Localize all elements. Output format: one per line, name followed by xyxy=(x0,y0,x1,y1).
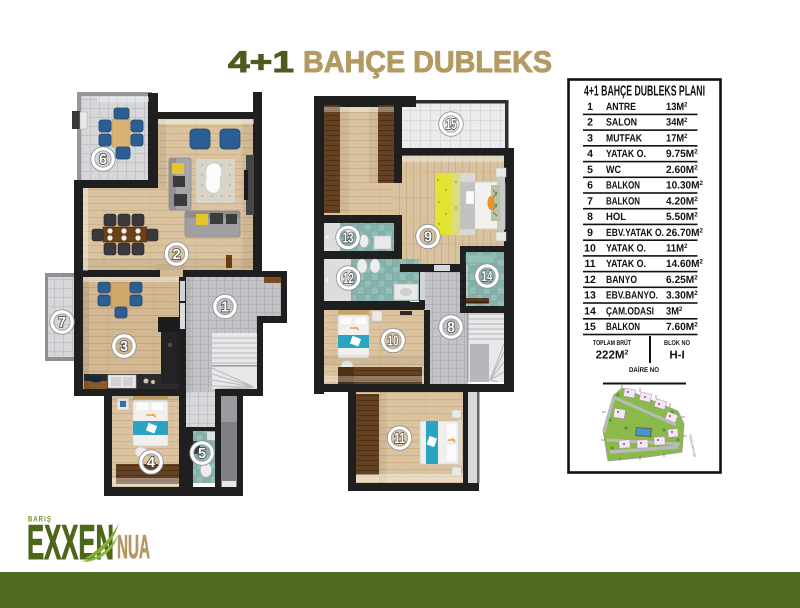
svg-text:EBV.YATAK O.: EBV.YATAK O. xyxy=(606,227,664,239)
svg-text:1: 1 xyxy=(221,299,229,315)
svg-text:WC: WC xyxy=(606,164,621,176)
svg-text:6: 6 xyxy=(99,152,107,168)
svg-text:YATAK O.: YATAK O. xyxy=(606,243,646,255)
svg-text:ANTRE: ANTRE xyxy=(606,101,636,113)
svg-text:TOPLAM BRÜT: TOPLAM BRÜT xyxy=(593,339,632,347)
svg-text:12: 12 xyxy=(584,274,596,286)
svg-text:2: 2 xyxy=(172,247,180,263)
svg-text:13: 13 xyxy=(343,230,354,246)
svg-text:222M2: 222M2 xyxy=(596,350,629,362)
svg-text:3: 3 xyxy=(587,132,593,144)
svg-text:9: 9 xyxy=(587,227,593,239)
svg-text:YATAK O.: YATAK O. xyxy=(606,258,646,270)
svg-text:NUA: NUA xyxy=(117,528,150,565)
svg-text:8: 8 xyxy=(447,320,455,336)
svg-text:10: 10 xyxy=(388,333,399,349)
svg-text:BALKON: BALKON xyxy=(606,195,640,207)
svg-text:EXXEN: EXXEN xyxy=(27,516,114,570)
svg-text:12: 12 xyxy=(343,271,354,287)
svg-text:4+1 BAHÇE DUBLEKS PLANI: 4+1 BAHÇE DUBLEKS PLANI xyxy=(584,84,705,100)
svg-text:7: 7 xyxy=(587,195,593,207)
svg-text:5: 5 xyxy=(198,446,206,462)
svg-text:BALKON: BALKON xyxy=(606,180,640,192)
svg-text:9.75M2: 9.75M2 xyxy=(666,148,698,160)
svg-text:5.50M2: 5.50M2 xyxy=(666,211,698,223)
svg-text:4+1: 4+1 xyxy=(228,46,294,79)
svg-text:BLOK NO: BLOK NO xyxy=(664,340,690,347)
svg-text:9: 9 xyxy=(424,229,432,245)
svg-text:15: 15 xyxy=(584,321,596,333)
svg-text:2.60M2: 2.60M2 xyxy=(666,164,698,176)
svg-text:11: 11 xyxy=(394,431,405,447)
svg-text:SALON: SALON xyxy=(606,117,637,129)
svg-text:4.20M2: 4.20M2 xyxy=(666,195,698,207)
svg-text:3.30M2: 3.30M2 xyxy=(666,290,698,302)
svg-text:14: 14 xyxy=(584,305,596,317)
svg-text:7: 7 xyxy=(58,315,66,331)
svg-text:5: 5 xyxy=(587,164,593,176)
svg-text:4: 4 xyxy=(147,455,155,471)
svg-text:1: 1 xyxy=(587,101,593,113)
svg-text:7.60M2: 7.60M2 xyxy=(666,321,698,333)
svg-text:8: 8 xyxy=(587,211,593,223)
svg-text:10.30M2: 10.30M2 xyxy=(666,180,703,192)
svg-text:15: 15 xyxy=(446,117,457,133)
svg-text:ÇAM.ODASI: ÇAM.ODASI xyxy=(606,305,654,317)
svg-text:DAİRE NO: DAİRE NO xyxy=(629,366,659,374)
svg-text:BAHÇE DUBLEKS: BAHÇE DUBLEKS xyxy=(303,46,552,79)
svg-text:6: 6 xyxy=(587,180,593,192)
svg-text:MUTFAK: MUTFAK xyxy=(606,132,642,144)
svg-text:26.70M2: 26.70M2 xyxy=(666,227,703,239)
svg-text:10: 10 xyxy=(584,243,596,255)
svg-text:HOL: HOL xyxy=(606,211,627,223)
svg-text:14: 14 xyxy=(482,269,493,285)
svg-text:2: 2 xyxy=(587,117,593,129)
svg-text:BANYO: BANYO xyxy=(606,274,637,286)
svg-text:EBV.BANYO.: EBV.BANYO. xyxy=(606,290,658,302)
svg-text:H-I: H-I xyxy=(669,350,684,362)
svg-text:13: 13 xyxy=(584,290,596,302)
svg-text:BALKON: BALKON xyxy=(606,321,640,333)
svg-text:11: 11 xyxy=(584,258,595,270)
svg-text:4: 4 xyxy=(587,148,593,160)
svg-text:14.60M2: 14.60M2 xyxy=(666,258,703,270)
svg-text:3: 3 xyxy=(120,339,128,355)
svg-text:YATAK O.: YATAK O. xyxy=(606,148,646,160)
svg-text:6.25M2: 6.25M2 xyxy=(666,274,698,286)
